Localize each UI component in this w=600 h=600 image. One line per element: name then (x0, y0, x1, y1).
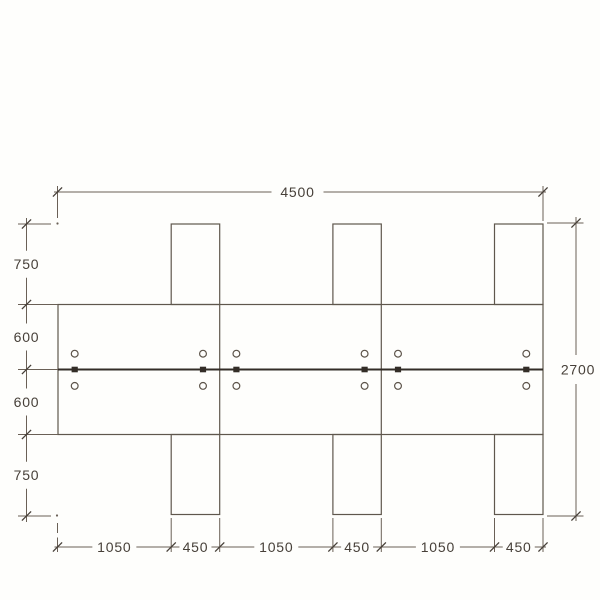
connector-square (233, 367, 239, 373)
hole-circle-bottom (523, 383, 530, 390)
connector-square (395, 367, 401, 373)
hole-circle-top (200, 350, 207, 357)
drawing-canvas: 4500270075060060075010504501050450105045… (0, 0, 600, 600)
connector-square (523, 367, 529, 373)
hole-circle-top (233, 350, 240, 357)
ref-dot (56, 514, 58, 516)
hole-circle-bottom (361, 383, 368, 390)
dim-label-bottom-6: 450 (506, 539, 532, 555)
dim-label-bottom-4: 450 (344, 539, 370, 555)
hole-circle-bottom (395, 383, 402, 390)
dim-label-left-4: 750 (14, 467, 40, 483)
dim-bottom: 105045010504501050450 (53, 518, 548, 555)
dim-label-bottom-5: 1050 (421, 539, 455, 555)
bottom-tab-2 (333, 435, 381, 515)
dim-label-bottom-1: 1050 (97, 539, 131, 555)
dim-label-top: 4500 (280, 184, 314, 200)
hole-circle-top (395, 350, 402, 357)
dim-label-left-3: 600 (14, 394, 40, 410)
bottom-tab-3 (495, 435, 544, 515)
top-tab-3 (495, 224, 544, 305)
dim-label-right: 2700 (561, 361, 595, 377)
hole-circle-top (523, 350, 530, 357)
connector-square (362, 367, 368, 373)
dim-right: 2700 (547, 217, 595, 521)
hole-circle-bottom (200, 383, 207, 390)
plan-drawing: 4500270075060060075010504501050450105045… (0, 0, 600, 600)
dim-label-left-2: 600 (14, 329, 40, 345)
connector-square (200, 367, 206, 373)
bottom-tab-1 (171, 435, 220, 515)
connector-square (72, 367, 78, 373)
dim-label-bottom-3: 1050 (259, 539, 293, 555)
top-tab-2 (333, 224, 381, 305)
dim-top: 4500 (53, 184, 548, 225)
dim-label-bottom-2: 450 (183, 539, 209, 555)
dim-left: 750600600750 (14, 218, 58, 522)
hole-circle-top (71, 350, 78, 357)
ref-dot (56, 222, 58, 224)
hole-circle-bottom (71, 383, 78, 390)
hole-circle-top (361, 350, 368, 357)
top-tab-1 (171, 224, 220, 305)
center-rail (58, 350, 543, 389)
dim-label-left-1: 750 (14, 256, 40, 272)
hole-circle-bottom (233, 383, 240, 390)
